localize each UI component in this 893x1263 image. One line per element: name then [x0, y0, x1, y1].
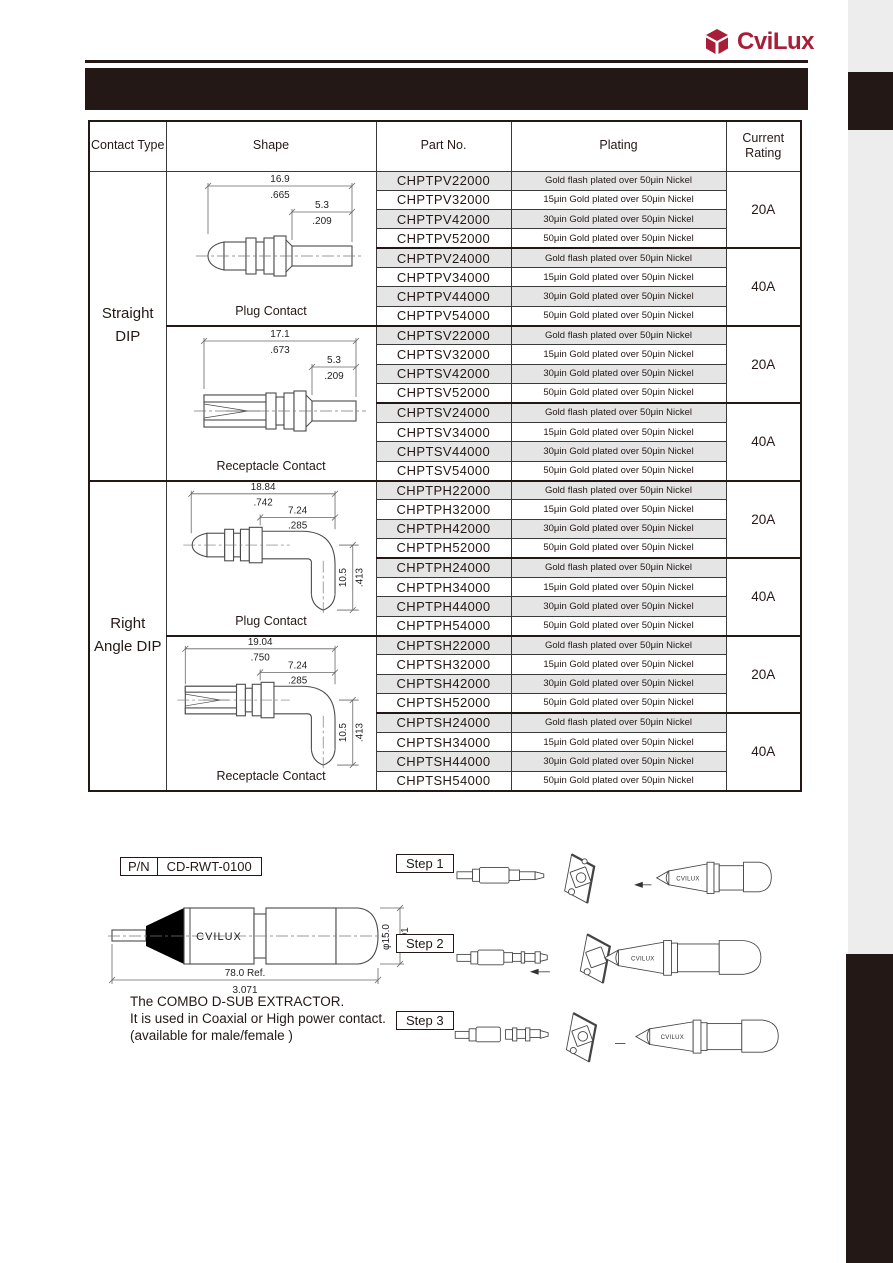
svg-text:.665: .665 [270, 190, 290, 201]
extractor-drawing: CVILUX 78.0 Ref. 3.071 φ15.0 .591 [108, 880, 410, 1005]
svg-text:.209: .209 [324, 371, 344, 382]
step-2-label: Step 2 [396, 934, 454, 953]
part-no-cell: CHPTSH52000 [376, 693, 511, 712]
extractor-pn-box: P/N CD-RWT-0100 [120, 857, 262, 876]
assembly-step-3: Step 3 CVILUX [394, 995, 794, 1075]
plating-cell: 50μin Gold plated over 50μin Nickel [511, 616, 726, 635]
svg-text:.750: .750 [251, 652, 271, 663]
svg-text:.209: .209 [312, 216, 332, 227]
cable-contact [457, 867, 544, 883]
plating-cell: 50μin Gold plated over 50μin Nickel [511, 383, 726, 402]
table-row: 19.04 .750 7.24 .285 10.5 .413 [89, 636, 801, 655]
svg-text:78.0 Ref.: 78.0 Ref. [225, 968, 266, 979]
part-no-cell: CHPTSH54000 [376, 771, 511, 790]
part-no-cell: CHPTPV22000 [376, 171, 511, 190]
svg-text:φ15.0: φ15.0 [381, 924, 392, 950]
part-no-cell: CHPTPH24000 [376, 558, 511, 578]
shell-plate [566, 1013, 596, 1062]
title-band [85, 68, 808, 110]
header-rule [85, 60, 808, 63]
part-no-cell: CHPTPV32000 [376, 190, 511, 209]
step-2-illustration: CVILUX [450, 918, 780, 996]
shape-cell-straight-plug: 16.9 .665 5.3 .209 [166, 171, 376, 326]
plating-cell: 30μin Gold plated over 50μin Nickel [511, 210, 726, 229]
svg-text:19.04: 19.04 [248, 637, 273, 648]
part-no-cell: CHPTSV42000 [376, 364, 511, 383]
extract-arrow [530, 969, 550, 975]
plating-cell: 15μin Gold plated over 50μin Nickel [511, 655, 726, 674]
svg-text:5.3: 5.3 [315, 200, 329, 211]
part-no-cell: CHPTPH34000 [376, 578, 511, 597]
plating-cell: Gold flash plated over 50μin Nickel [511, 248, 726, 267]
plating-cell: 30μin Gold plated over 50μin Nickel [511, 442, 726, 461]
pn-label: P/N [120, 857, 158, 876]
current-rating-cell: 20A [726, 481, 801, 558]
header-shape: Shape [166, 121, 376, 171]
part-no-cell: CHPTPH22000 [376, 481, 511, 500]
current-rating-cell: 40A [726, 248, 801, 325]
svg-text:CVILUX: CVILUX [661, 1035, 684, 1041]
shape-label: Receptacle Contact [216, 769, 325, 783]
plating-cell: 15μin Gold plated over 50μin Nickel [511, 345, 726, 364]
assembly-step-2: Step 2 CVILUX [394, 918, 794, 998]
svg-text:7.24: 7.24 [288, 505, 308, 516]
table-row: Right Angle DIP 18.84 .742 7.24 [89, 481, 801, 500]
svg-text:10.5: 10.5 [338, 567, 349, 587]
plating-cell: Gold flash plated over 50μin Nickel [511, 558, 726, 578]
part-no-cell: CHPTPV54000 [376, 306, 511, 325]
sidebar-gray-strip [848, 0, 893, 956]
svg-text:.742: .742 [254, 497, 273, 508]
plating-cell: Gold flash plated over 50μin Nickel [511, 326, 726, 345]
svg-text:.673: .673 [270, 345, 290, 356]
plating-cell: Gold flash plated over 50μin Nickel [511, 636, 726, 655]
shape-cell-right-angle-receptacle: 19.04 .750 7.24 .285 10.5 .413 [166, 636, 376, 791]
cvilux-cube-icon [704, 28, 730, 56]
plating-cell: 50μin Gold plated over 50μin Nickel [511, 693, 726, 712]
part-no-cell: CHPTSH22000 [376, 636, 511, 655]
part-no-cell: CHPTPV44000 [376, 287, 511, 306]
shape-cell-right-angle-plug: 18.84 .742 7.24 .285 10.5 .413 [166, 481, 376, 636]
part-no-cell: CHPTSV22000 [376, 326, 511, 345]
svg-text:18.84: 18.84 [251, 482, 276, 493]
plating-cell: 30μin Gold plated over 50μin Nickel [511, 597, 726, 616]
right-angle-plug-drawing: 18.84 .742 7.24 .285 10.5 .413 [168, 482, 374, 614]
svg-text:.413: .413 [355, 722, 366, 742]
svg-text:.285: .285 [288, 520, 308, 531]
svg-text:.285: .285 [288, 675, 308, 686]
part-no-cell: CHPTSH42000 [376, 674, 511, 693]
shape-label: Plug Contact [235, 614, 307, 628]
plating-cell: 30μin Gold plated over 50μin Nickel [511, 674, 726, 693]
current-rating-cell: 40A [726, 713, 801, 791]
assembly-step-1: Step 1 CVILUX [394, 838, 794, 918]
part-no-cell: CHPTSH32000 [376, 655, 511, 674]
part-no-cell: CHPTPV42000 [376, 210, 511, 229]
sidebar-tab-top [848, 72, 893, 130]
plating-cell: 30μin Gold plated over 50μin Nickel [511, 364, 726, 383]
part-no-cell: CHPTPV52000 [376, 229, 511, 248]
right-angle-receptacle-drawing: 19.04 .750 7.24 .285 10.5 .413 [168, 637, 374, 769]
cable-contact [455, 1027, 548, 1042]
header-part-no: Part No. [376, 121, 511, 171]
plating-cell: 30μin Gold plated over 50μin Nickel [511, 287, 726, 306]
header-current-rating: Current Rating [726, 121, 801, 171]
plating-cell: Gold flash plated over 50μin Nickel [511, 713, 726, 733]
plating-cell: 15μin Gold plated over 50μin Nickel [511, 578, 726, 597]
plating-cell: 15μin Gold plated over 50μin Nickel [511, 500, 726, 519]
current-rating-cell: 20A [726, 326, 801, 403]
step-1-label: Step 1 [396, 854, 454, 873]
extractor-tool: CVILUX [657, 862, 772, 893]
shape-cell-straight-receptacle: 17.1 .673 5.3 .209 [166, 326, 376, 481]
extractor-desc-line-1: The COMBO D-SUB EXTRACTOR. [130, 993, 386, 1010]
sidebar-tab-bottom [846, 954, 893, 1263]
svg-text:7.24: 7.24 [288, 660, 308, 671]
plating-cell: 15μin Gold plated over 50μin Nickel [511, 190, 726, 209]
brand-name: CviLux [737, 28, 814, 56]
part-no-cell: CHPTPV24000 [376, 248, 511, 267]
part-no-cell: CHPTSV52000 [376, 383, 511, 402]
plating-cell: Gold flash plated over 50μin Nickel [511, 171, 726, 190]
part-no-cell: CHPTSV32000 [376, 345, 511, 364]
svg-text:CVILUX: CVILUX [676, 876, 699, 882]
step-3-label: Step 3 [396, 1011, 454, 1030]
extractor-description: The COMBO D-SUB EXTRACTOR. It is used in… [130, 993, 386, 1044]
plating-cell: 50μin Gold plated over 50μin Nickel [511, 771, 726, 790]
step-3-illustration: CVILUX [450, 995, 780, 1073]
plating-cell: Gold flash plated over 50μin Nickel [511, 481, 726, 500]
part-no-cell: CHPTSH34000 [376, 733, 511, 752]
extractor-body-text: CVILUX [196, 931, 242, 943]
plating-cell: 15μin Gold plated over 50μin Nickel [511, 423, 726, 442]
extractor-tool: CVILUX [636, 1020, 778, 1053]
plating-cell: 50μin Gold plated over 50μin Nickel [511, 229, 726, 248]
straight-plug-drawing: 16.9 .665 5.3 .209 [168, 172, 374, 304]
straight-receptacle-drawing: 17.1 .673 5.3 .209 [168, 327, 374, 459]
header-contact-type: Contact Type [89, 121, 166, 171]
header-plating: Plating [511, 121, 726, 171]
part-no-cell: CHPTPH42000 [376, 519, 511, 538]
contact-spec-table: Contact Type Shape Part No. Plating Curr… [88, 120, 802, 792]
insert-arrow [634, 882, 651, 888]
table-row: 17.1 .673 5.3 .209 [89, 326, 801, 345]
contact-type-straight-dip: Straight DIP [89, 171, 166, 481]
plating-cell: 50μin Gold plated over 50μin Nickel [511, 538, 726, 557]
table-row: Straight DIP 16.9 .665 5.3 [89, 171, 801, 190]
current-rating-cell: 20A [726, 636, 801, 713]
contact-type-right-angle-dip: Right Angle DIP [89, 481, 166, 791]
table-header-row: Contact Type Shape Part No. Plating Curr… [89, 121, 801, 171]
extractor-desc-line-2: It is used in Coaxial or High power cont… [130, 1010, 386, 1027]
svg-text:5.3: 5.3 [327, 355, 341, 366]
brand-logo: CviLux [704, 28, 814, 56]
shape-label: Receptacle Contact [216, 459, 325, 473]
plating-cell: 50μin Gold plated over 50μin Nickel [511, 306, 726, 325]
plating-cell: 15μin Gold plated over 50μin Nickel [511, 733, 726, 752]
svg-text:17.1: 17.1 [270, 329, 290, 340]
svg-text:.413: .413 [355, 567, 366, 587]
plating-cell: 30μin Gold plated over 50μin Nickel [511, 519, 726, 538]
current-rating-cell: 20A [726, 171, 801, 248]
part-no-cell: CHPTPV34000 [376, 268, 511, 287]
part-no-cell: CHPTSV34000 [376, 423, 511, 442]
plating-cell: Gold flash plated over 50μin Nickel [511, 403, 726, 423]
shape-label: Plug Contact [235, 304, 307, 318]
plating-cell: 50μin Gold plated over 50μin Nickel [511, 461, 726, 480]
part-no-cell: CHPTSH44000 [376, 752, 511, 771]
part-no-cell: CHPTSH24000 [376, 713, 511, 733]
current-rating-cell: 40A [726, 403, 801, 481]
part-no-cell: CHPTSV44000 [376, 442, 511, 461]
svg-text:CVILUX: CVILUX [631, 956, 654, 962]
current-rating-cell: 40A [726, 558, 801, 636]
part-no-cell: CHPTSV24000 [376, 403, 511, 423]
part-no-cell: CHPTPH52000 [376, 538, 511, 557]
svg-text:10.5: 10.5 [338, 722, 349, 742]
pn-value: CD-RWT-0100 [158, 857, 262, 876]
part-no-cell: CHPTPH54000 [376, 616, 511, 635]
extractor-desc-line-3: (available for male/female ) [130, 1027, 386, 1044]
datasheet-page: CviLux Contact Type Shape Part No. Plati… [0, 0, 893, 1263]
part-no-cell: CHPTPH32000 [376, 500, 511, 519]
step-1-illustration: CVILUX [450, 838, 780, 916]
plating-cell: 15μin Gold plated over 50μin Nickel [511, 268, 726, 287]
plating-cell: 30μin Gold plated over 50μin Nickel [511, 752, 726, 771]
shell-plate [565, 854, 595, 903]
cable-contact [457, 950, 547, 965]
part-no-cell: CHPTSV54000 [376, 461, 511, 480]
extractor-tool: CVILUX [605, 941, 761, 976]
svg-text:16.9: 16.9 [270, 174, 290, 185]
part-no-cell: CHPTPH44000 [376, 597, 511, 616]
